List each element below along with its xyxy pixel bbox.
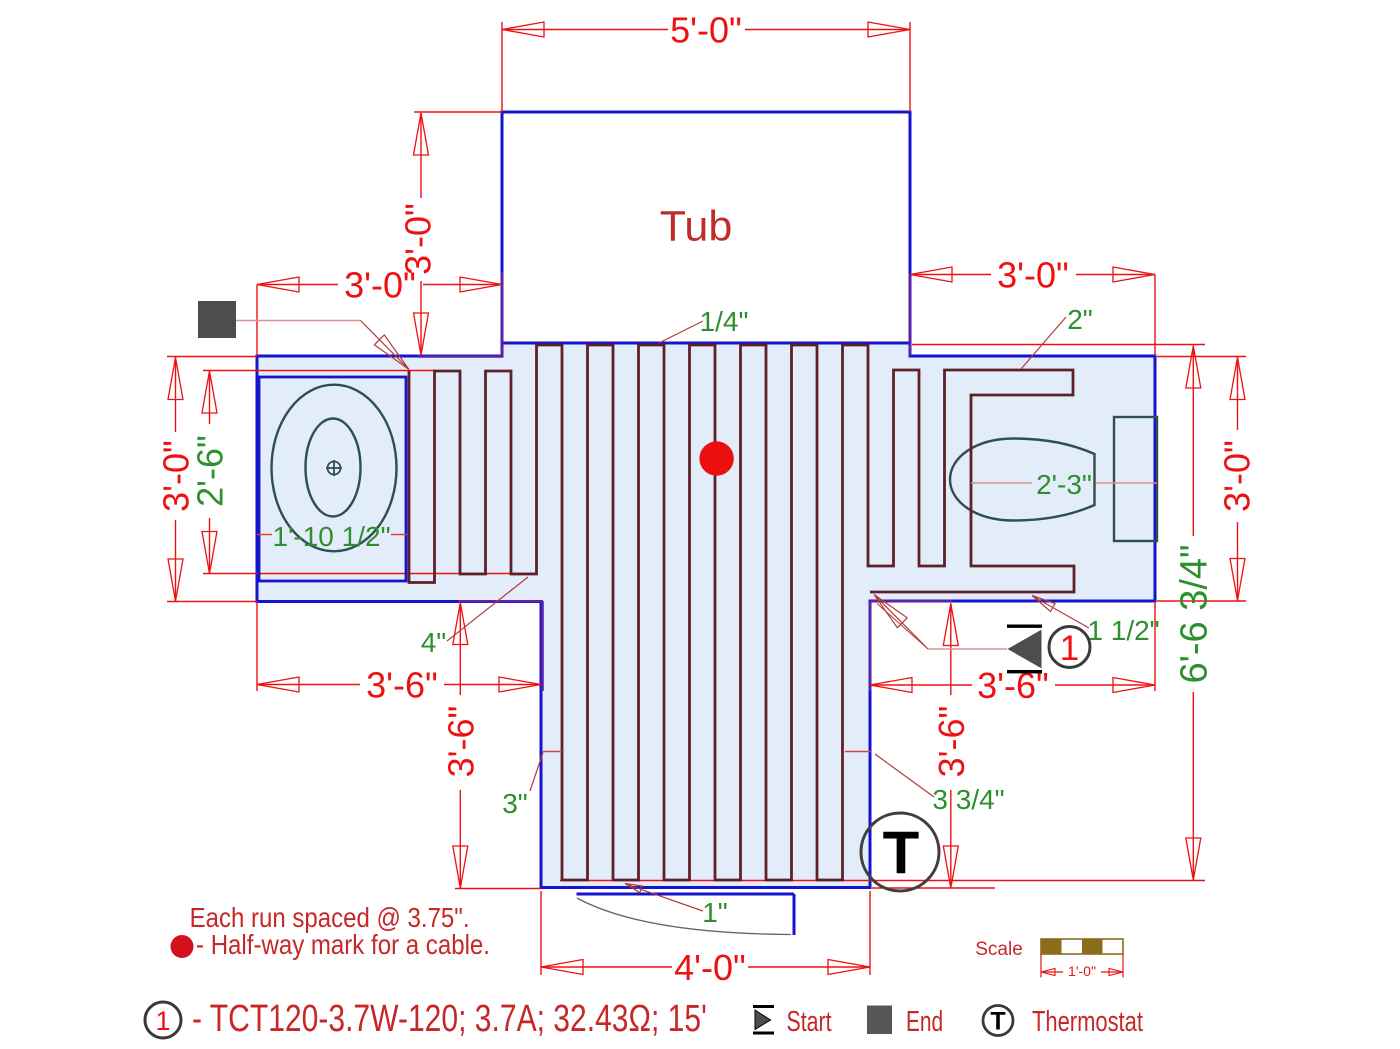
svg-text:T: T — [990, 1008, 1005, 1036]
svg-text:3'-0": 3'-0" — [344, 265, 416, 306]
svg-text:1/4": 1/4" — [700, 306, 749, 337]
svg-text:1: 1 — [155, 1006, 170, 1036]
svg-text:3": 3" — [502, 788, 528, 819]
svg-text:1'-0": 1'-0" — [1068, 963, 1096, 979]
svg-text:3'-6": 3'-6" — [931, 706, 972, 778]
svg-text:Thermostat: Thermostat — [1032, 1006, 1143, 1038]
svg-text:Tub: Tub — [660, 203, 733, 251]
svg-text:1: 1 — [1060, 629, 1079, 668]
svg-text:1": 1" — [702, 897, 728, 928]
svg-text:Start: Start — [787, 1006, 832, 1038]
svg-text:3'-0": 3'-0" — [997, 255, 1069, 296]
svg-text:6'-6 3/4": 6'-6 3/4" — [1174, 544, 1216, 683]
svg-text:T: T — [883, 820, 920, 887]
svg-text:3 3/4": 3 3/4" — [932, 784, 1004, 815]
svg-text:End: End — [906, 1006, 943, 1038]
svg-text:3'-6": 3'-6" — [441, 706, 482, 778]
svg-text:2'-3": 2'-3" — [1036, 469, 1092, 500]
svg-text:1'-10 1/2": 1'-10 1/2" — [272, 521, 390, 552]
svg-text:4'-0": 4'-0" — [674, 947, 746, 988]
svg-text:Scale: Scale — [975, 939, 1023, 960]
svg-text:3'-0": 3'-0" — [1217, 440, 1258, 512]
svg-text:2'-6": 2'-6" — [190, 435, 231, 507]
svg-text:5'-0": 5'-0" — [670, 10, 742, 51]
svg-text:4": 4" — [421, 627, 447, 658]
svg-text:1 1/2": 1 1/2" — [1087, 615, 1159, 646]
svg-text:3'-6": 3'-6" — [366, 665, 438, 706]
svg-text:- Half-way mark for a cable.: - Half-way mark for a cable. — [196, 928, 490, 960]
svg-text:- TCT120-3.7W-120; 3.7A; 32.43: - TCT120-3.7W-120; 3.7A; 32.43Ω; 15' — [192, 998, 707, 1040]
svg-text:2": 2" — [1067, 304, 1093, 335]
